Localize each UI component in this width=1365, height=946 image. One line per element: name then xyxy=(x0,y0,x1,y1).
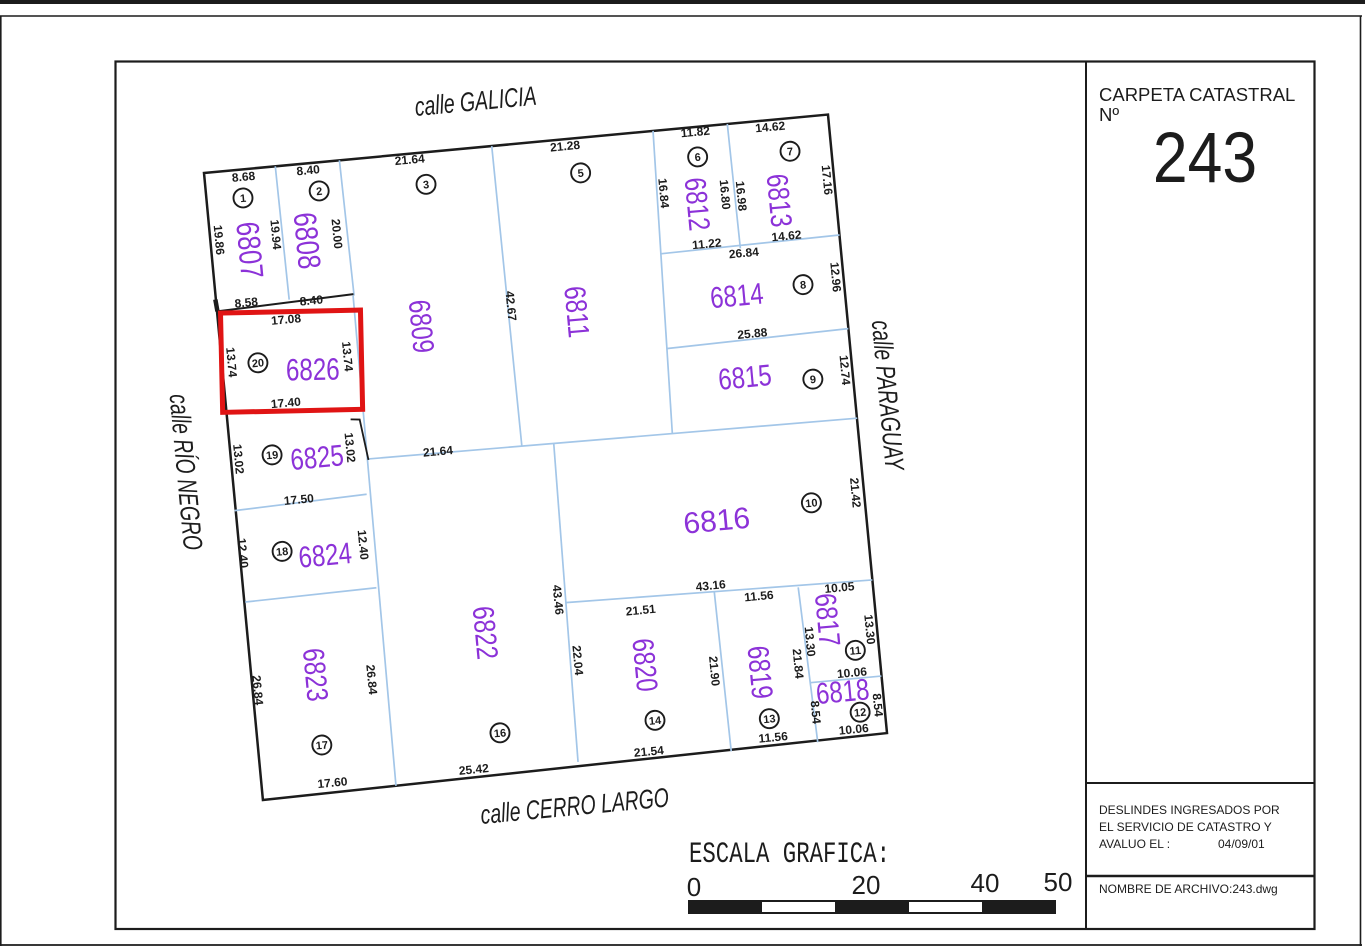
svg-text:17.60: 17.60 xyxy=(317,774,349,791)
svg-text:16.80: 16.80 xyxy=(717,179,734,211)
svg-text:AVALUO EL :: AVALUO EL : xyxy=(1099,837,1170,851)
svg-text:21.28: 21.28 xyxy=(549,138,581,155)
svg-text:CARPETA CATASTRAL: CARPETA CATASTRAL xyxy=(1099,84,1295,105)
svg-text:21.42: 21.42 xyxy=(847,477,864,509)
svg-text:10.06: 10.06 xyxy=(838,721,870,738)
svg-text:19.94: 19.94 xyxy=(267,219,284,251)
svg-text:21.54: 21.54 xyxy=(633,743,665,760)
svg-text:17.16: 17.16 xyxy=(819,164,836,196)
svg-text:13.02: 13.02 xyxy=(230,443,247,475)
svg-text:21.64: 21.64 xyxy=(422,443,454,460)
svg-text:21.84: 21.84 xyxy=(790,648,807,680)
svg-text:6: 6 xyxy=(694,152,701,165)
svg-text:42.67: 42.67 xyxy=(503,290,520,322)
svg-text:14.62: 14.62 xyxy=(755,119,787,136)
svg-text:11: 11 xyxy=(849,645,862,658)
svg-text:18: 18 xyxy=(276,546,289,559)
svg-text:21.64: 21.64 xyxy=(394,151,426,168)
svg-text:43.16: 43.16 xyxy=(695,577,727,594)
svg-text:8.40: 8.40 xyxy=(296,162,321,178)
svg-text:26.84: 26.84 xyxy=(363,664,380,696)
svg-text:6807: 6807 xyxy=(229,220,269,280)
svg-text:25.42: 25.42 xyxy=(458,761,490,778)
svg-text:1: 1 xyxy=(239,193,246,206)
svg-text:12: 12 xyxy=(854,707,867,720)
svg-text:EL SERVICIO DE CATASTRO Y: EL SERVICIO DE CATASTRO Y xyxy=(1099,820,1272,834)
svg-text:20: 20 xyxy=(251,357,264,370)
svg-text:14: 14 xyxy=(648,715,662,728)
svg-text:12.40: 12.40 xyxy=(355,529,372,561)
svg-text:25.88: 25.88 xyxy=(737,325,769,342)
svg-text:6813: 6813 xyxy=(760,172,799,228)
svg-text:21.51: 21.51 xyxy=(625,602,657,619)
svg-text:5: 5 xyxy=(577,168,584,181)
svg-text:21.90: 21.90 xyxy=(706,655,723,687)
svg-text:20.00: 20.00 xyxy=(329,218,346,250)
svg-text:16.98: 16.98 xyxy=(733,180,750,212)
svg-text:6808: 6808 xyxy=(286,211,326,271)
svg-text:8: 8 xyxy=(800,279,807,292)
svg-text:13.74: 13.74 xyxy=(339,341,356,373)
svg-text:6818: 6818 xyxy=(814,672,870,711)
svg-text:2: 2 xyxy=(316,186,323,199)
svg-text:16: 16 xyxy=(493,727,506,740)
svg-text:6825: 6825 xyxy=(289,438,345,477)
svg-text:12.96: 12.96 xyxy=(827,261,844,293)
svg-text:43.46: 43.46 xyxy=(550,584,567,616)
svg-text:6814: 6814 xyxy=(709,276,765,315)
svg-text:6820: 6820 xyxy=(626,637,665,693)
svg-text:6822: 6822 xyxy=(466,605,505,661)
svg-text:ESCALA GRAFICA:: ESCALA GRAFICA: xyxy=(689,838,890,872)
svg-text:26.84: 26.84 xyxy=(728,245,760,262)
svg-text:13.30: 13.30 xyxy=(861,614,878,646)
svg-text:8.54: 8.54 xyxy=(870,693,886,718)
svg-text:17: 17 xyxy=(315,739,328,752)
svg-text:40: 40 xyxy=(971,868,1000,898)
svg-text:10: 10 xyxy=(805,497,818,510)
svg-text:12.40: 12.40 xyxy=(234,537,251,569)
svg-text:6811: 6811 xyxy=(558,285,597,340)
svg-text:6824: 6824 xyxy=(297,535,353,574)
svg-text:Nº: Nº xyxy=(1099,104,1119,125)
svg-text:6815: 6815 xyxy=(717,357,773,396)
svg-text:22.04: 22.04 xyxy=(569,645,586,677)
svg-text:6817: 6817 xyxy=(808,592,847,648)
svg-text:DESLINDES INGRESADOS POR: DESLINDES INGRESADOS POR xyxy=(1099,803,1280,817)
svg-text:6826: 6826 xyxy=(286,352,340,388)
svg-text:3: 3 xyxy=(423,179,430,192)
svg-text:8.68: 8.68 xyxy=(231,169,256,185)
svg-text:04/09/01: 04/09/01 xyxy=(1218,837,1265,851)
svg-text:8.40: 8.40 xyxy=(299,292,324,308)
svg-text:20: 20 xyxy=(852,870,881,900)
svg-text:26.84: 26.84 xyxy=(249,675,266,707)
svg-text:16.84: 16.84 xyxy=(655,178,672,210)
svg-text:6819: 6819 xyxy=(741,644,780,700)
svg-text:13.02: 13.02 xyxy=(342,432,359,464)
svg-text:6812: 6812 xyxy=(678,176,717,232)
svg-text:13: 13 xyxy=(763,713,776,726)
svg-text:50: 50 xyxy=(1044,867,1073,897)
svg-text:243: 243 xyxy=(1153,118,1257,198)
svg-text:7: 7 xyxy=(787,146,794,159)
svg-text:8.58: 8.58 xyxy=(234,295,259,311)
svg-text:9: 9 xyxy=(809,374,816,387)
svg-text:0: 0 xyxy=(687,872,701,902)
svg-text:12.74: 12.74 xyxy=(837,355,854,387)
svg-text:19.86: 19.86 xyxy=(211,224,228,256)
svg-text:11.56: 11.56 xyxy=(758,729,789,746)
svg-text:11.82: 11.82 xyxy=(680,124,711,141)
svg-text:6823: 6823 xyxy=(296,647,335,703)
svg-text:13.74: 13.74 xyxy=(223,347,240,379)
svg-text:19: 19 xyxy=(266,449,279,462)
svg-text:6809: 6809 xyxy=(402,298,441,354)
svg-text:11.56: 11.56 xyxy=(744,588,775,605)
svg-text:17.50: 17.50 xyxy=(283,491,315,508)
svg-text:NOMBRE DE ARCHIVO:243.dwg: NOMBRE DE ARCHIVO:243.dwg xyxy=(1099,882,1278,896)
svg-text:11.22: 11.22 xyxy=(692,236,723,253)
svg-text:6816: 6816 xyxy=(682,502,752,541)
svg-text:14.62: 14.62 xyxy=(771,228,803,245)
